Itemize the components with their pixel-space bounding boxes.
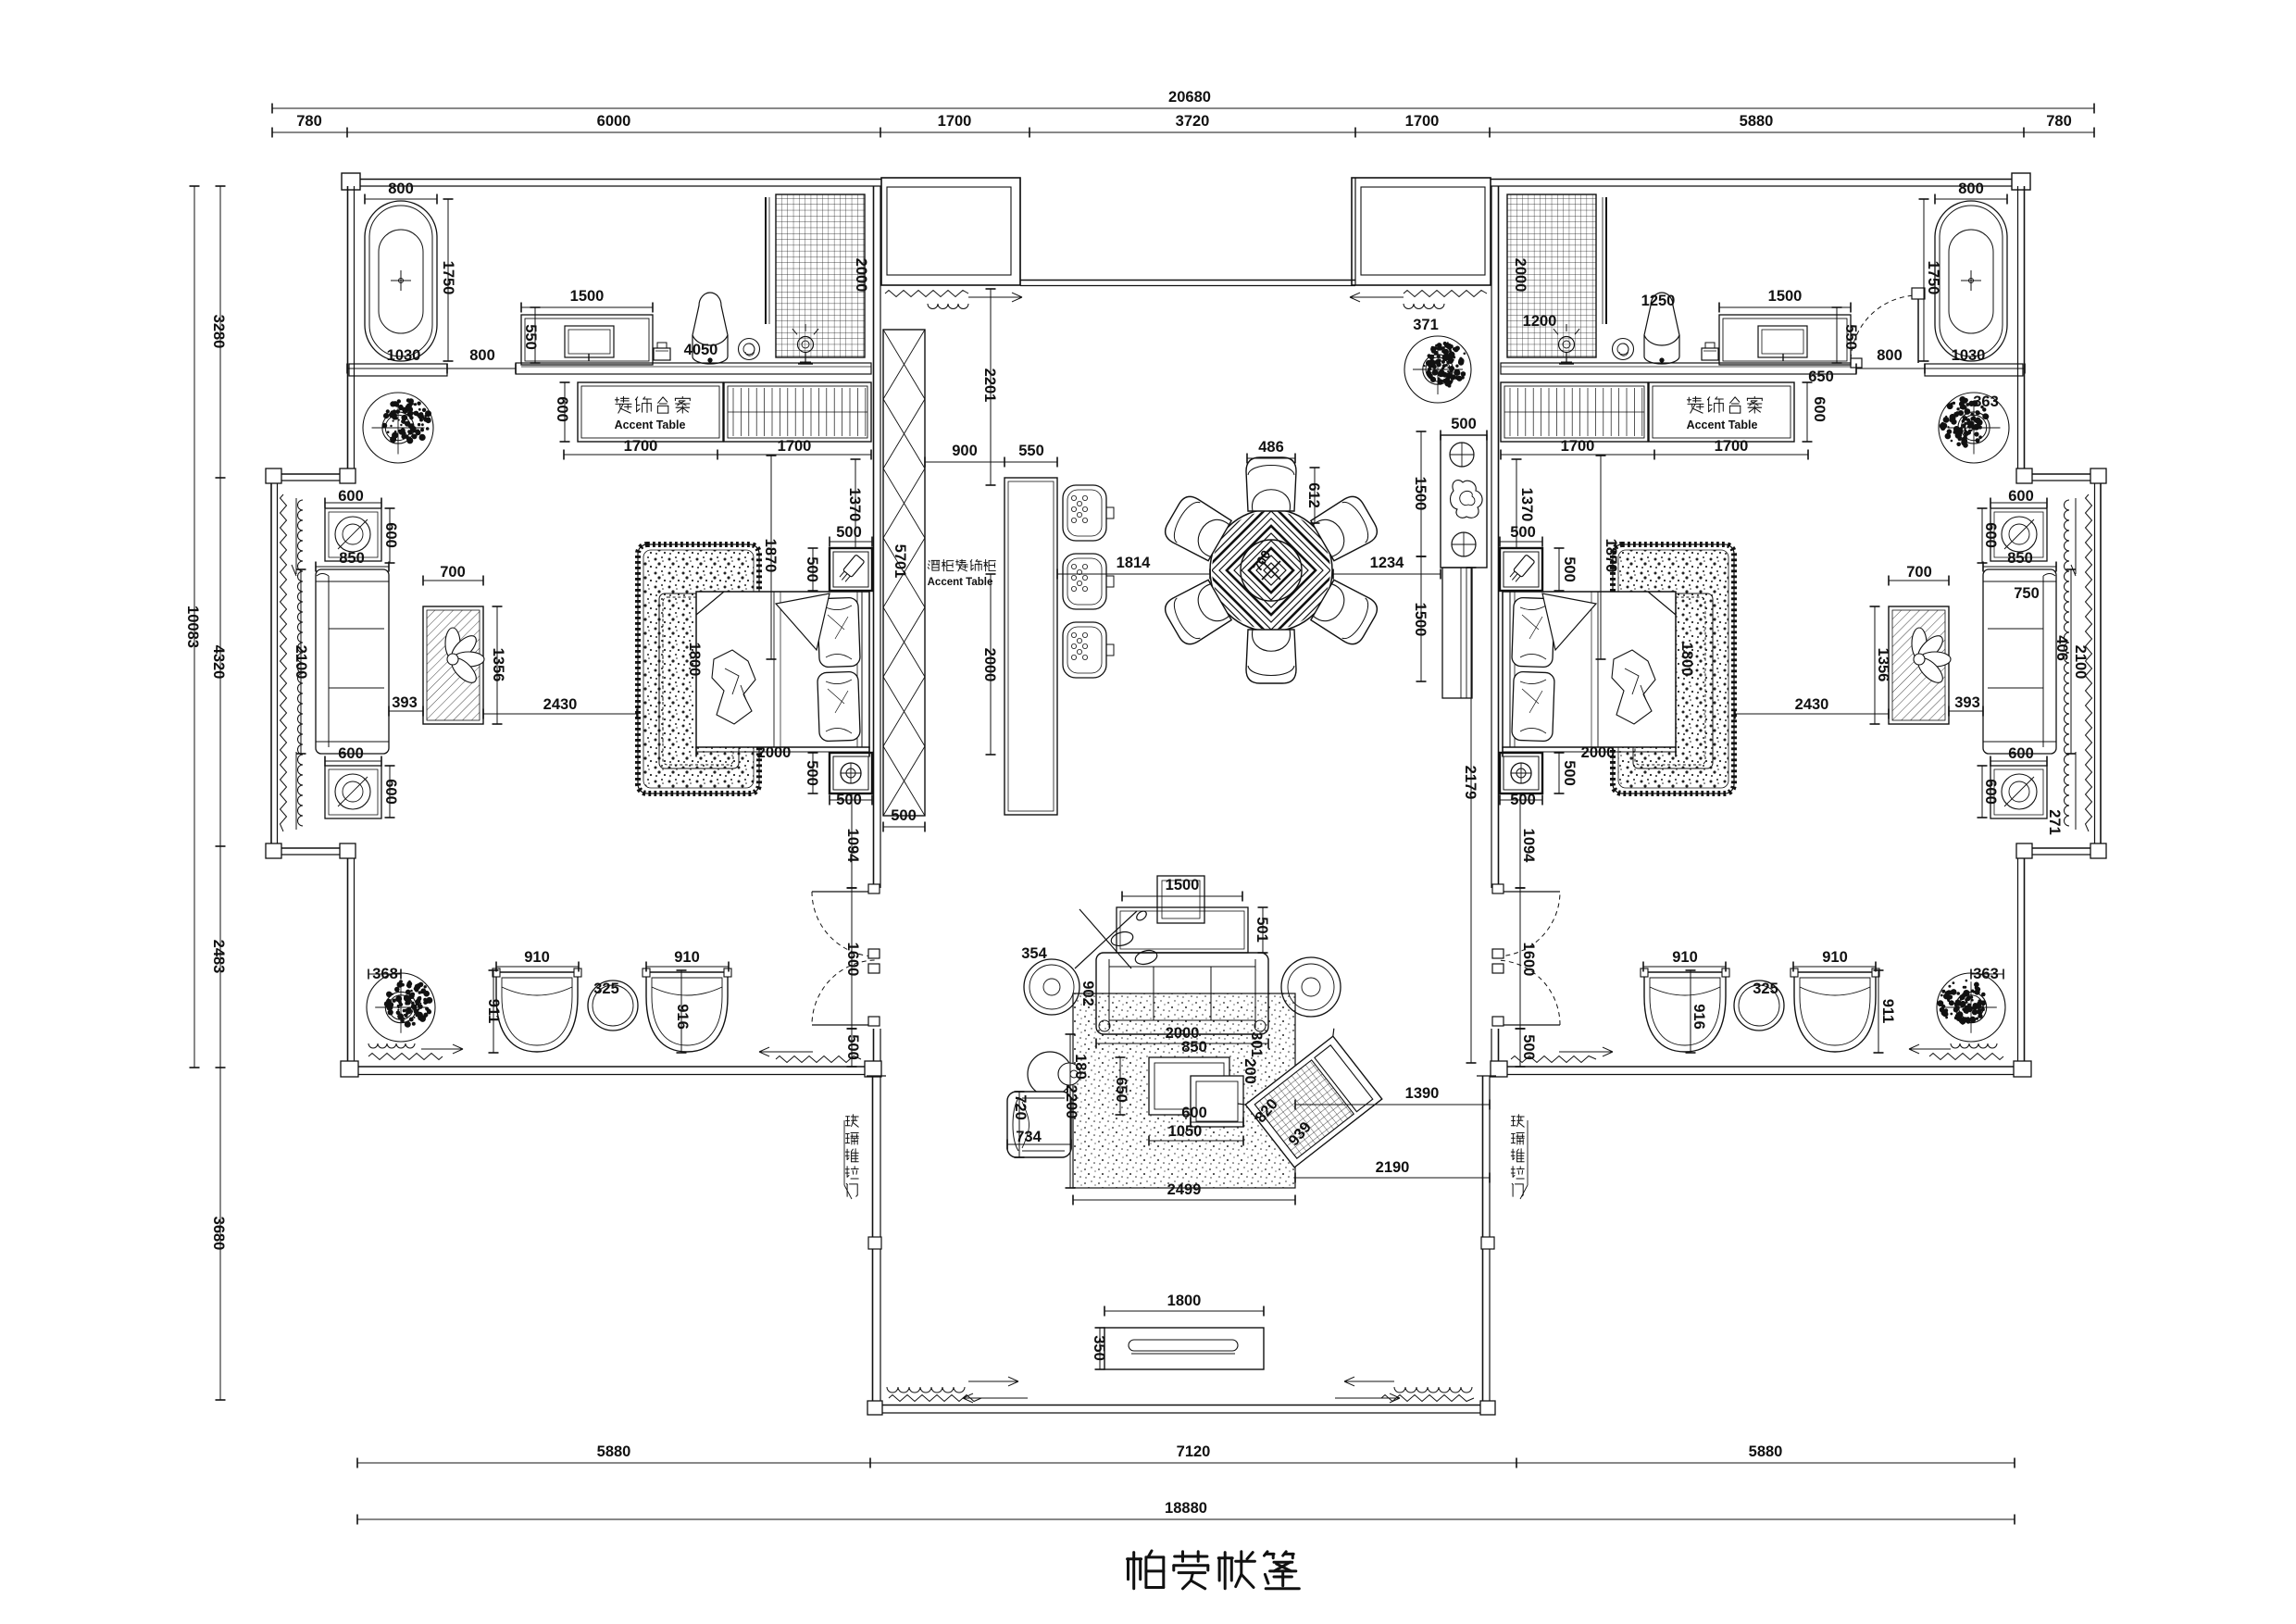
svg-text:800: 800 (388, 181, 414, 197)
svg-text:10083: 10083 (184, 606, 201, 648)
svg-text:3720: 3720 (1176, 113, 1210, 130)
svg-text:911: 911 (1879, 999, 1896, 1024)
svg-text:1050: 1050 (1168, 1123, 1203, 1140)
svg-text:1700: 1700 (624, 438, 658, 455)
svg-text:5701: 5701 (892, 544, 908, 579)
svg-text:5880: 5880 (1740, 113, 1774, 130)
svg-text:486: 486 (1258, 439, 1284, 456)
svg-text:910: 910 (674, 949, 700, 966)
svg-text:500: 500 (844, 1034, 861, 1060)
svg-text:2430: 2430 (543, 696, 578, 713)
svg-text:600: 600 (1811, 396, 1828, 422)
svg-text:500: 500 (836, 524, 862, 541)
svg-text:600: 600 (1181, 1105, 1207, 1121)
svg-text:600: 600 (554, 396, 570, 422)
svg-text:1500: 1500 (570, 288, 605, 305)
svg-text:20680: 20680 (1168, 89, 1211, 106)
svg-text:393: 393 (392, 694, 418, 711)
svg-text:1250: 1250 (1641, 293, 1676, 309)
svg-text:910: 910 (1672, 949, 1698, 966)
svg-text:850: 850 (339, 550, 365, 567)
svg-text:1030: 1030 (1952, 347, 1986, 364)
svg-text:700: 700 (440, 564, 466, 581)
svg-text:1500: 1500 (1166, 877, 1200, 893)
svg-text:Accent Table: Accent Table (615, 418, 686, 431)
svg-text:1356: 1356 (1875, 648, 1891, 682)
svg-text:1600: 1600 (844, 943, 861, 977)
svg-text:550: 550 (1018, 443, 1044, 459)
svg-text:600: 600 (382, 522, 399, 548)
svg-text:550: 550 (1842, 324, 1859, 350)
svg-text:1870: 1870 (762, 539, 779, 573)
svg-text:500: 500 (1451, 416, 1477, 432)
svg-text:1800: 1800 (1678, 643, 1695, 677)
svg-text:1356: 1356 (490, 648, 506, 682)
svg-text:600: 600 (1982, 779, 1999, 805)
svg-text:600: 600 (2008, 488, 2034, 505)
svg-text:1030: 1030 (387, 347, 421, 364)
svg-text:800: 800 (1877, 347, 1903, 364)
svg-text:650: 650 (1113, 1077, 1129, 1103)
svg-text:500: 500 (1510, 524, 1536, 541)
svg-text:2201: 2201 (981, 369, 998, 403)
svg-text:916: 916 (674, 1004, 691, 1030)
svg-text:2000: 2000 (853, 258, 869, 293)
svg-text:500: 500 (1520, 1034, 1537, 1060)
svg-text:1094: 1094 (1520, 829, 1537, 864)
svg-text:650: 650 (1808, 369, 1834, 385)
svg-text:600: 600 (338, 488, 364, 505)
svg-text:916: 916 (1691, 1004, 1707, 1030)
svg-text:501: 501 (1254, 917, 1270, 943)
svg-text:500: 500 (804, 760, 820, 786)
svg-text:550: 550 (522, 324, 539, 350)
svg-text:850: 850 (2007, 550, 2033, 567)
svg-text:720: 720 (1012, 1094, 1029, 1120)
svg-text:350: 350 (1091, 1335, 1107, 1361)
svg-text:850: 850 (1181, 1039, 1207, 1056)
svg-text:780: 780 (2046, 113, 2072, 130)
svg-text:1750: 1750 (440, 261, 456, 295)
svg-text:734: 734 (1016, 1129, 1042, 1145)
svg-text:2200: 2200 (1063, 1085, 1079, 1119)
svg-text:1500: 1500 (1768, 288, 1803, 305)
svg-text:500: 500 (804, 556, 820, 582)
svg-text:2430: 2430 (1795, 696, 1829, 713)
svg-text:500: 500 (1561, 556, 1578, 582)
svg-text:612: 612 (1305, 482, 1322, 508)
svg-text:1750: 1750 (1925, 261, 1941, 295)
svg-text:2499: 2499 (1167, 1181, 1202, 1198)
svg-text:180: 180 (1072, 1054, 1089, 1080)
svg-text:780: 780 (296, 113, 322, 130)
svg-text:271: 271 (2046, 809, 2063, 835)
svg-text:1370: 1370 (1518, 488, 1535, 522)
svg-text:7120: 7120 (1177, 1443, 1211, 1460)
svg-text:406: 406 (2053, 635, 2070, 661)
svg-text:2190: 2190 (1376, 1159, 1410, 1176)
svg-text:4050: 4050 (684, 342, 718, 358)
svg-text:2100: 2100 (293, 645, 309, 680)
svg-text:Accent Table: Accent Table (1687, 418, 1758, 431)
svg-text:2000: 2000 (1512, 258, 1529, 293)
svg-text:1500: 1500 (1412, 603, 1429, 637)
svg-text:1800: 1800 (686, 643, 703, 677)
svg-text:200: 200 (1242, 1058, 1258, 1084)
svg-text:363: 363 (1973, 394, 1999, 410)
svg-text:1700: 1700 (1405, 113, 1440, 130)
svg-text:18880: 18880 (1165, 1500, 1207, 1517)
svg-text:2483: 2483 (210, 940, 227, 974)
svg-text:1234: 1234 (1370, 555, 1405, 571)
svg-text:1500: 1500 (1412, 477, 1429, 511)
svg-text:1094: 1094 (844, 829, 861, 864)
svg-text:354: 354 (1021, 945, 1047, 962)
svg-text:1700: 1700 (778, 438, 812, 455)
svg-text:2179: 2179 (1462, 766, 1479, 800)
svg-text:2000: 2000 (981, 648, 998, 682)
svg-text:910: 910 (1822, 949, 1848, 966)
svg-text:600: 600 (338, 745, 364, 762)
svg-text:1700: 1700 (1561, 438, 1595, 455)
svg-text:500: 500 (1510, 792, 1536, 808)
svg-text:600: 600 (382, 779, 399, 805)
svg-text:1600: 1600 (1520, 943, 1537, 977)
svg-text:371: 371 (1413, 317, 1439, 333)
svg-text:3680: 3680 (210, 1217, 227, 1251)
svg-text:4320: 4320 (210, 645, 227, 680)
svg-text:1700: 1700 (938, 113, 972, 130)
svg-text:500: 500 (891, 807, 917, 824)
svg-text:700: 700 (1906, 564, 1932, 581)
svg-text:1870: 1870 (1603, 539, 1619, 573)
svg-text:2000: 2000 (757, 744, 792, 761)
svg-text:500: 500 (836, 792, 862, 808)
svg-text:1200: 1200 (1523, 313, 1557, 330)
svg-text:5880: 5880 (1749, 1443, 1783, 1460)
svg-text:500: 500 (1561, 760, 1578, 786)
svg-text:1800: 1800 (1167, 1293, 1202, 1309)
svg-text:3280: 3280 (210, 315, 227, 349)
svg-text:325: 325 (593, 981, 619, 997)
svg-text:5880: 5880 (597, 1443, 631, 1460)
svg-text:301: 301 (1248, 1031, 1265, 1057)
svg-text:1814: 1814 (1117, 555, 1152, 571)
svg-text:900: 900 (952, 443, 978, 459)
svg-text:368: 368 (372, 966, 398, 982)
svg-text:1700: 1700 (1715, 438, 1749, 455)
svg-text:2000: 2000 (1581, 744, 1616, 761)
svg-text:600: 600 (1982, 522, 1999, 548)
svg-text:600: 600 (2008, 745, 2034, 762)
svg-text:1370: 1370 (846, 488, 863, 522)
svg-text:6000: 6000 (597, 113, 631, 130)
svg-text:910: 910 (524, 949, 550, 966)
svg-text:750: 750 (2014, 585, 2040, 602)
svg-text:902: 902 (1079, 981, 1096, 1006)
svg-text:911: 911 (485, 999, 502, 1024)
svg-text:363: 363 (1973, 966, 1999, 982)
svg-text:800: 800 (469, 347, 495, 364)
svg-text:325: 325 (1753, 981, 1778, 997)
svg-text:2100: 2100 (2072, 645, 2089, 680)
svg-text:1390: 1390 (1405, 1085, 1440, 1102)
svg-text:Accent Table: Accent Table (928, 577, 993, 588)
svg-text:393: 393 (1954, 694, 1980, 711)
svg-text:800: 800 (1958, 181, 1984, 197)
